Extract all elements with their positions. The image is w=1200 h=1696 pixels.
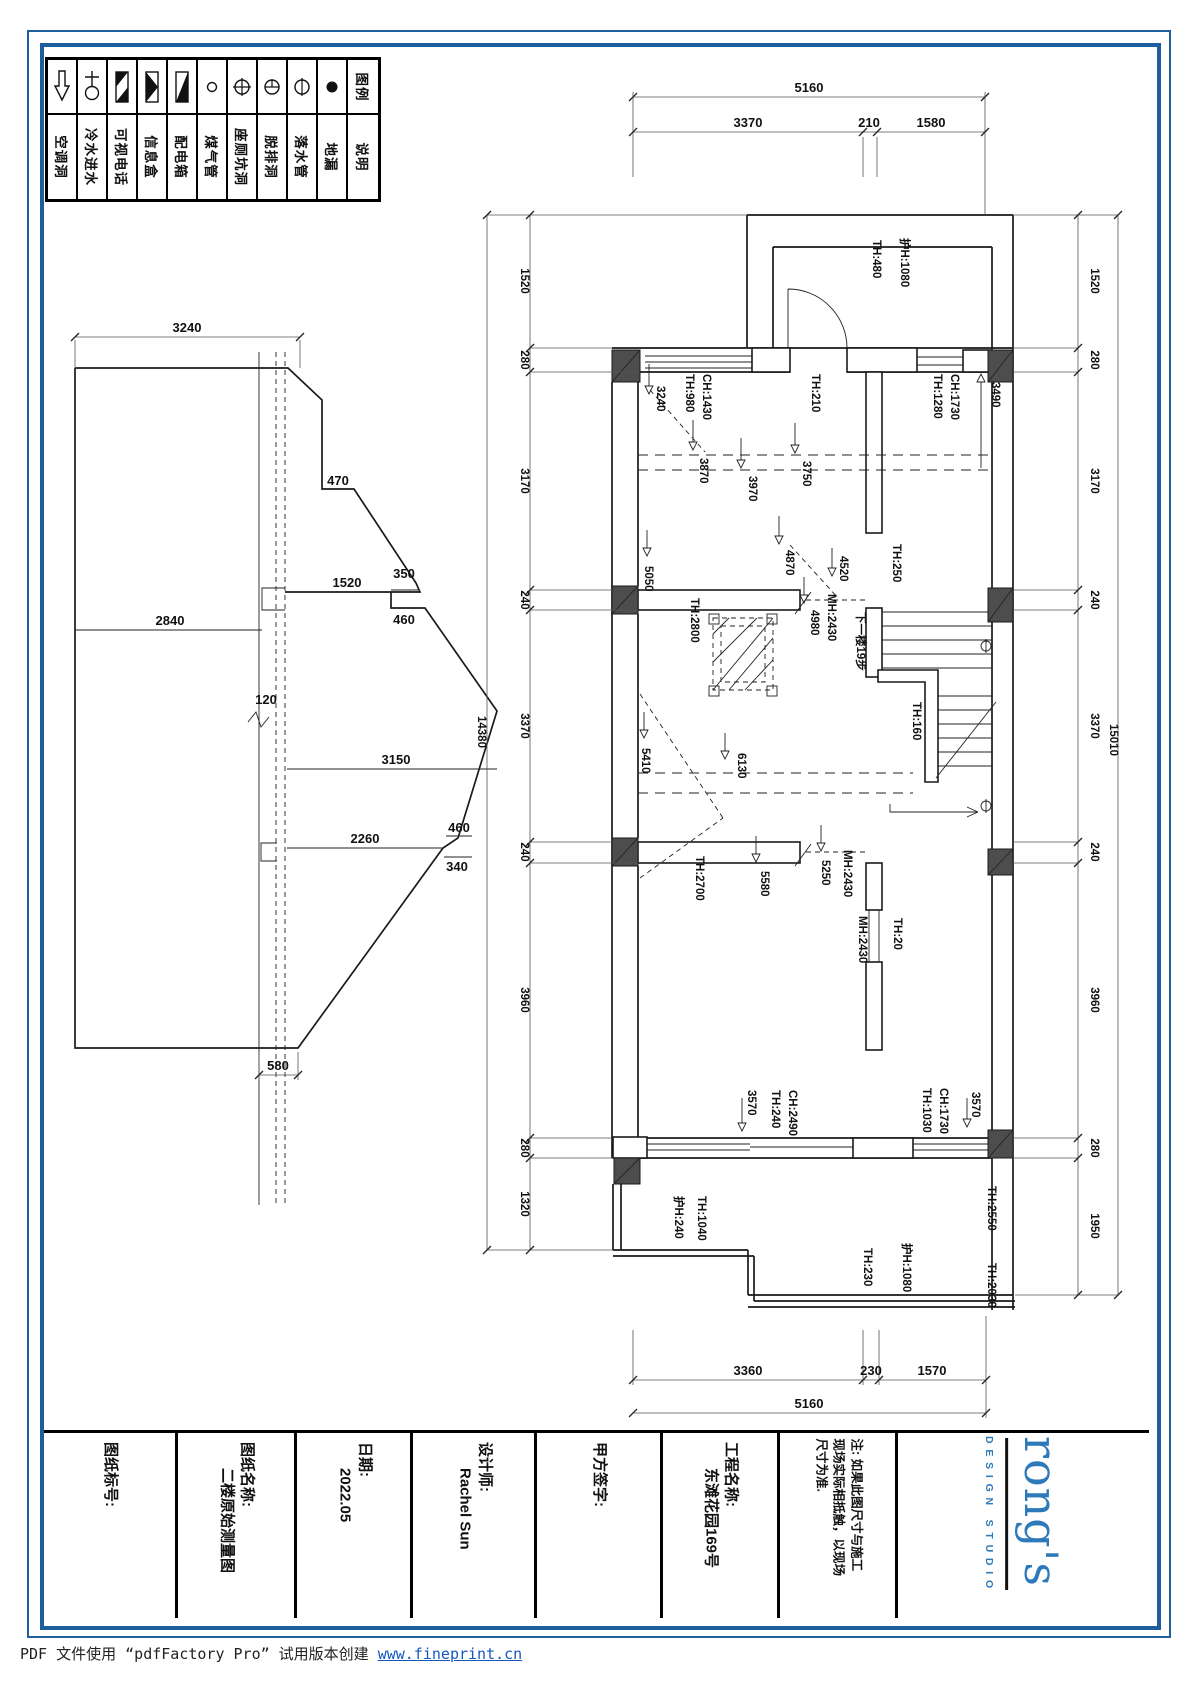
legend-col-ac-hole: 空调洞 bbox=[48, 60, 78, 199]
legend-col-info-box: 信息盒 bbox=[138, 60, 168, 199]
dim-label: 280 bbox=[518, 350, 530, 369]
title-cell-designer: 设计师:Rachel Sun bbox=[413, 1433, 537, 1618]
dim-label: 240 bbox=[518, 842, 530, 861]
field-label: 图纸名称: bbox=[236, 1442, 256, 1610]
room-label: TH:980 bbox=[683, 374, 695, 412]
elevation-label: 3240 bbox=[654, 386, 666, 412]
room-label: CH:1730 bbox=[937, 1088, 949, 1134]
room-label: TH:2550 bbox=[985, 1186, 997, 1231]
room-label: TH:230 bbox=[861, 1248, 873, 1286]
dim-label: 1570 bbox=[918, 1363, 947, 1378]
dim-label: 280 bbox=[1088, 350, 1100, 369]
stair-note: 下一楼19步 bbox=[854, 612, 868, 671]
dim-label: 1320 bbox=[518, 1191, 530, 1217]
roof-dim: 460 bbox=[393, 612, 415, 627]
room-label: MH:2430 bbox=[841, 850, 853, 897]
dim-label: 3960 bbox=[1088, 987, 1100, 1013]
room-label: CH:1730 bbox=[948, 374, 960, 420]
dim-label: 210 bbox=[858, 115, 880, 130]
dim-label: 1950 bbox=[1088, 1213, 1100, 1239]
dim-label: 230 bbox=[860, 1363, 882, 1378]
dim-label: 3370 bbox=[518, 713, 530, 739]
legend-col-exhaust-hole: 脱排洞 bbox=[258, 60, 288, 199]
note-line: 尺寸为准. bbox=[811, 1438, 829, 1613]
title-cell-client-signature: 甲方签字: bbox=[537, 1433, 663, 1618]
roof-plan: 3240 470 1520 350 460 2840 120 3150 2260… bbox=[71, 320, 497, 1205]
exhaust-hole-icon bbox=[258, 60, 286, 115]
dim-label: 240 bbox=[1088, 842, 1100, 861]
roof-dim: 580 bbox=[267, 1058, 289, 1073]
roof-dim: 3150 bbox=[382, 752, 411, 767]
room-label: TH:240 bbox=[769, 1090, 781, 1128]
dim-label: 14380 bbox=[475, 716, 487, 748]
roof-dim: 2840 bbox=[156, 613, 185, 628]
title-cell-note: 注: 如果此图尺寸与施工现场实际相抵触，以现场尺寸为准. bbox=[780, 1433, 898, 1618]
legend-item-label: 冷水进水 bbox=[82, 128, 102, 186]
legend-item-label: 脱排洞 bbox=[262, 135, 282, 179]
ac-hole-icon bbox=[48, 60, 76, 115]
elevation-label: 3570 bbox=[969, 1092, 981, 1118]
legend-item-label: 地漏 bbox=[322, 143, 342, 172]
legend-header-col: 图例 说明 bbox=[348, 60, 378, 199]
dim-label: 1520 bbox=[1088, 268, 1100, 294]
fineprint-link[interactable]: www.fineprint.cn bbox=[378, 1645, 523, 1663]
field-label: 日期: bbox=[354, 1442, 374, 1610]
roof-dim: 340 bbox=[446, 859, 468, 874]
room-label: TH:2800 bbox=[688, 598, 700, 643]
floor-drain-icon bbox=[318, 60, 346, 115]
room-label: TH:1030 bbox=[920, 1088, 932, 1133]
pdf-watermark: PDF 文件使用 “pdfFactory Pro” 试用版本创建 www.fin… bbox=[20, 1643, 522, 1664]
roof-dim: 460 bbox=[448, 820, 470, 835]
elevation-label: 5050 bbox=[642, 566, 654, 592]
room-label: TH:1280 bbox=[931, 374, 943, 419]
roof-dim: 350 bbox=[393, 566, 415, 581]
room-label: TH:2030 bbox=[985, 1263, 997, 1308]
elevation-markers: 3240 3870 3970 3750 3490 4870 4520 4980 … bbox=[639, 364, 1001, 1131]
dim-label: 280 bbox=[1088, 1138, 1100, 1157]
room-label: CH:1430 bbox=[700, 374, 712, 420]
field-value: 2022.05 bbox=[333, 1442, 353, 1610]
note-line: 现场实际相抵触，以现场 bbox=[829, 1438, 847, 1613]
legend-col-gas-pipe: 煤气管 bbox=[198, 60, 228, 199]
roof-dim: 2260 bbox=[351, 831, 380, 846]
watermark-text: PDF 文件使用 “pdfFactory Pro” 试用版本创建 bbox=[20, 1645, 378, 1663]
room-label: MH:2430 bbox=[825, 594, 837, 641]
field-label: 甲方签字: bbox=[588, 1442, 608, 1610]
legend-item-label: 信息盒 bbox=[142, 135, 162, 179]
title-cell-logo: rong's DESIGN STUDIO bbox=[898, 1433, 1149, 1618]
legend-item-label: 可视电话 bbox=[112, 128, 132, 186]
room-label: 护H:1080 bbox=[898, 238, 912, 287]
legend-item-label: 煤气管 bbox=[202, 135, 222, 179]
roof-dim: 3240 bbox=[173, 320, 202, 335]
room-label: TH:20 bbox=[891, 918, 903, 950]
field-value: 二楼原始测量图 bbox=[216, 1442, 236, 1610]
dim-label: 3360 bbox=[734, 1363, 763, 1378]
dim-label: 5160 bbox=[795, 80, 824, 95]
title-cell-project-name: 工程名称:东滩花园169号 bbox=[663, 1433, 780, 1618]
field-value: Rachel Sun bbox=[453, 1442, 473, 1610]
elevation-label: 5580 bbox=[758, 871, 770, 897]
room-label: TH:480 bbox=[870, 240, 882, 278]
legend-col-cold-water: 冷水进水 bbox=[78, 60, 108, 199]
note-line: 注: 如果此图尺寸与施工 bbox=[846, 1438, 864, 1613]
studio-logo: rong's bbox=[1016, 1436, 1064, 1616]
dim-label: 3370 bbox=[1088, 713, 1100, 739]
field-value: 东滩花园169号 bbox=[700, 1442, 720, 1610]
room-label: TH:210 bbox=[809, 374, 821, 412]
field-label: 设计师: bbox=[474, 1442, 494, 1610]
elevation-label: 4870 bbox=[783, 550, 795, 576]
legend-col-downpipe: 落水管 bbox=[288, 60, 318, 199]
elevation-label: 5410 bbox=[639, 748, 651, 774]
legend-col-distribution-box: 配电箱 bbox=[168, 60, 198, 199]
legend-header-symbol: 图例 bbox=[353, 72, 373, 101]
legend-item-label: 落水管 bbox=[292, 135, 312, 179]
roof-dim: 470 bbox=[327, 473, 349, 488]
dim-label: 3170 bbox=[1088, 468, 1100, 494]
room-label: 护H:1080 bbox=[900, 1243, 914, 1292]
room-label: TH:250 bbox=[890, 544, 902, 582]
elevation-label: 4980 bbox=[808, 610, 820, 636]
field-label: 图纸标号: bbox=[99, 1442, 119, 1610]
legend-col-toilet-pit: 座厕坑洞 bbox=[228, 60, 258, 199]
elevation-label: 4520 bbox=[837, 556, 849, 582]
video-phone-icon bbox=[108, 60, 136, 115]
legend-item-label: 配电箱 bbox=[172, 135, 192, 179]
elevation-label: 3570 bbox=[745, 1090, 757, 1116]
dim-label: 5160 bbox=[795, 1396, 824, 1411]
roof-dim: 1520 bbox=[333, 575, 362, 590]
elevation-label: 3490 bbox=[989, 382, 1001, 408]
elevation-label: 5250 bbox=[819, 860, 831, 886]
info-box-icon bbox=[138, 60, 166, 115]
elevation-label: 3970 bbox=[746, 476, 758, 502]
gas-pipe-icon bbox=[198, 60, 226, 115]
dim-label: 15010 bbox=[1107, 724, 1119, 756]
dim-label: 3960 bbox=[518, 987, 530, 1013]
legend-item-label: 空调洞 bbox=[52, 135, 72, 179]
title-cell-sheet-no: 图纸标号: bbox=[44, 1433, 178, 1618]
dim-label: 240 bbox=[1088, 590, 1100, 609]
dimension-lines: 5160 3370 210 1580 3360 230 1570 5160 15… bbox=[475, 80, 1122, 1418]
dim-label: 3170 bbox=[518, 468, 530, 494]
dim-label: 280 bbox=[518, 1138, 530, 1157]
legend-col-video-phone: 可视电话 bbox=[108, 60, 138, 199]
legend-header-desc: 说明 bbox=[353, 143, 373, 172]
downpipe-icon bbox=[288, 60, 316, 115]
room-label: TH:160 bbox=[910, 702, 922, 740]
title-block: 图纸标号: 图纸名称:二楼原始测量图 日期:2022.05 设计师:Rachel… bbox=[44, 1430, 1149, 1618]
room-label: CH:2490 bbox=[786, 1090, 798, 1136]
legend-table: 空调洞 冷水进水 可视电话 信息盒 配电箱 煤气管 座厕坑洞 bbox=[45, 57, 381, 202]
dim-label: 1520 bbox=[518, 268, 530, 294]
field-label: 工程名称: bbox=[720, 1442, 740, 1610]
elevation-label: 3870 bbox=[697, 458, 709, 484]
dim-label: 240 bbox=[518, 590, 530, 609]
title-cell-sheet-name: 图纸名称:二楼原始测量图 bbox=[178, 1433, 297, 1618]
cold-water-inlet-icon bbox=[78, 60, 106, 115]
room-label: 护H:240 bbox=[672, 1196, 686, 1239]
toilet-pit-icon bbox=[228, 60, 256, 115]
roof-dim: 120 bbox=[255, 692, 277, 707]
room-label: TH:2700 bbox=[693, 856, 705, 901]
distribution-box-icon bbox=[168, 60, 196, 115]
elevation-label: 6130 bbox=[735, 753, 747, 779]
room-label: MH:2430 bbox=[856, 916, 868, 963]
void-hatch bbox=[709, 614, 777, 696]
studio-tagline: DESIGN STUDIO bbox=[982, 1436, 994, 1616]
legend-item-label: 座厕坑洞 bbox=[232, 128, 252, 186]
dim-label: 3370 bbox=[734, 115, 763, 130]
title-cell-date: 日期:2022.05 bbox=[297, 1433, 413, 1618]
elevation-label: 3750 bbox=[800, 461, 812, 487]
logo-divider bbox=[1004, 1438, 1007, 1590]
dim-label: 1580 bbox=[917, 115, 946, 130]
legend-col-floor-drain: 地漏 bbox=[318, 60, 348, 199]
room-label: TH:1040 bbox=[695, 1196, 707, 1241]
